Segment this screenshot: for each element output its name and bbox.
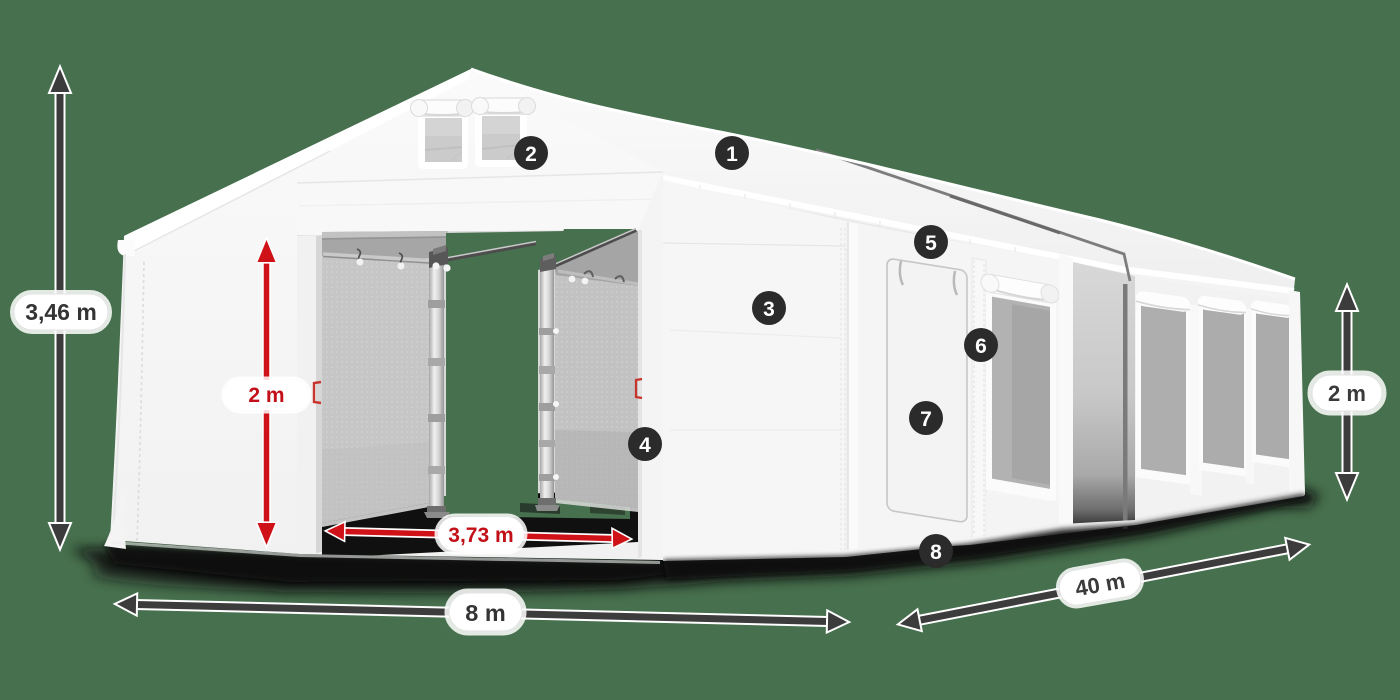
svg-text:2 m: 2 m (1328, 381, 1366, 406)
svg-text:7: 7 (920, 408, 932, 431)
svg-text:6: 6 (975, 335, 987, 358)
svg-text:5: 5 (925, 232, 937, 255)
svg-text:3: 3 (763, 298, 775, 321)
svg-text:1: 1 (726, 143, 738, 166)
svg-text:8: 8 (930, 541, 942, 564)
svg-text:2 m: 2 m (248, 384, 284, 407)
svg-text:3,46 m: 3,46 m (25, 299, 97, 325)
svg-text:8 m: 8 m (465, 600, 506, 626)
svg-text:3,73 m: 3,73 m (448, 524, 513, 547)
svg-text:4: 4 (639, 434, 651, 457)
svg-text:2: 2 (525, 143, 537, 166)
